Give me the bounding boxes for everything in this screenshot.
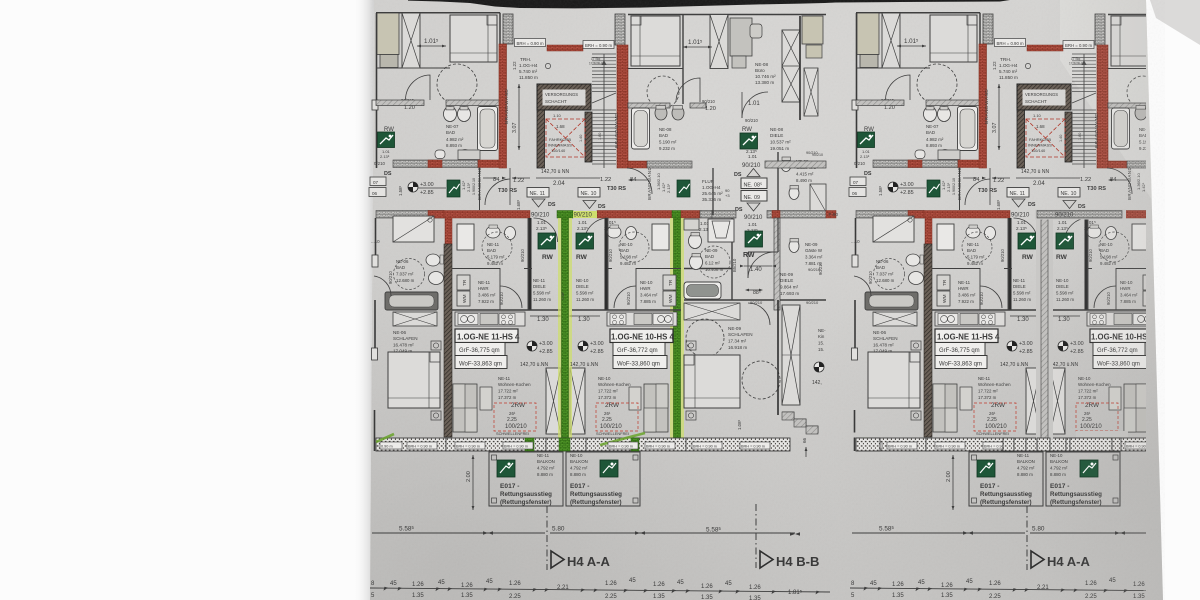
svg-text:26¹: 26¹ [509,411,516,416]
svg-text:1.01: 1.01 [748,101,760,107]
svg-text:90/210: 90/210 [818,262,823,275]
svg-text:SCHLAFEN: SCHLAFEN [393,336,418,341]
svg-text:142,70 ü.NN: 142,70 ü.NN [520,362,548,368]
svg-text:11.260 m: 11.260 m [533,297,551,302]
svg-text:90/210: 90/210 [744,215,763,221]
svg-text:+3.00: +3.00 [420,182,434,188]
svg-text:2.25: 2.25 [602,417,612,423]
svg-text:17.372 m: 17.372 m [498,395,517,400]
svg-text:1.80: 1.80 [598,133,602,140]
svg-text:45: 45 [438,580,445,586]
svg-text:1.OG-NE 11-HS 4: 1.OG-NE 11-HS 4 [457,333,520,342]
svg-text:1.OG-H4: 1.OG-H4 [702,185,721,190]
svg-text:90/210: 90/210 [520,249,525,262]
svg-text:1.OG-H4: 1.OG-H4 [519,63,538,68]
svg-text:1.900/2.10: 1.900/2.10 [472,178,476,195]
svg-text:100/210: 100/210 [505,424,527,430]
svg-text:11.260 m: 11.260 m [576,297,594,302]
svg-text:RW: RW [742,127,752,133]
svg-text:DIELE: DIELE [533,284,546,289]
svg-text:(Rettungsfenster): (Rettungsfenster) [570,499,622,506]
svg-text:DS: DS [734,172,742,178]
svg-text:BALKON: BALKON [537,459,555,464]
svg-text:1.26: 1.26 [461,583,473,589]
svg-text:NE. 08⁵: NE. 08⁵ [744,183,763,189]
svg-text:35.336 m: 35.336 m [702,197,721,202]
svg-text:Kin: Kin [818,334,825,339]
svg-text:+3: +3 [725,193,730,198]
svg-text:DIELE: DIELE [780,278,793,283]
svg-text:NE-11: NE-11 [537,453,550,458]
svg-text:BALKON: BALKON [570,459,588,464]
svg-text:DIELE: DIELE [576,284,589,289]
svg-text:TR: TR [462,279,468,286]
svg-text:NE-11: NE-11 [533,278,546,283]
svg-text:B5/210: B5/210 [732,258,737,272]
svg-text:17.722 m²: 17.722 m² [598,389,618,394]
svg-text:2.25: 2.25 [605,594,617,600]
svg-text:0/210: 0/210 [374,161,386,166]
svg-text:NE-10: NE-10 [598,376,611,381]
svg-text:NE-09: NE-09 [805,242,818,247]
svg-text:3.464 m²: 3.464 m² [640,293,658,298]
svg-text:NE-09: NE-09 [705,248,718,253]
svg-text:2.04: 2.04 [553,181,565,187]
svg-text:1.68: 1.68 [556,124,565,129]
svg-text:90/210: 90/210 [626,292,631,305]
svg-text:142,: 142, [812,380,822,386]
svg-text:9.232 m: 9.232 m [659,146,675,151]
svg-text:1.08⁵: 1.08⁵ [737,419,742,430]
svg-text:NE-08: NE-08 [770,127,783,132]
svg-text:8.893 m: 8.893 m [446,143,462,148]
svg-text:1.01: 1.01 [578,220,587,225]
svg-text:84: 84 [493,177,500,183]
svg-text:SCHWELLENFREI: SCHWELLENFREI [596,431,629,436]
svg-text:NE-11: NE-11 [498,376,511,381]
svg-text:BRH = 0.90 m: BRH = 0.90 m [693,445,717,449]
svg-text:BAD: BAD [659,133,668,138]
svg-text:BRH = 0.90 m: BRH = 0.90 m [741,445,765,449]
svg-text:F90: F90 [446,393,450,400]
svg-text:NE-09: NE-09 [780,272,793,277]
svg-text:5.179 m²: 5.179 m² [487,255,505,260]
svg-text:1.35: 1.35 [653,594,665,600]
svg-text:9.482 m: 9.482 m [620,261,636,266]
svg-text:3.07: 3.07 [512,123,518,134]
svg-text:2.13⁵: 2.13⁵ [666,183,671,193]
svg-text:1.01: 1.01 [748,222,757,227]
svg-text:Rettungsausstieg: Rettungsausstieg [500,491,552,498]
svg-text:+2.85: +2.85 [590,349,604,355]
svg-text:4.792 m²: 4.792 m² [537,466,555,471]
svg-text:SCHWELLENFREI: SCHWELLENFREI [496,431,529,436]
svg-text:NE-06: NE-06 [396,259,409,264]
svg-text:Wohnen-Kochen: Wohnen-Kochen [598,382,631,387]
svg-text:1.35: 1.35 [461,593,473,599]
svg-text:2.13⁵: 2.13⁵ [380,154,390,159]
svg-text:90/210: 90/210 [608,249,613,262]
svg-text:100/210: 100/210 [600,424,622,430]
svg-text:7.922 m: 7.922 m [478,299,494,304]
svg-text:3.364 m²: 3.364 m² [805,255,823,260]
svg-text:FAHRKORB: FAHRKORB [549,137,571,142]
svg-text:17.049 m: 17.049 m [393,349,412,354]
svg-text:GrF-36,775 qm: GrF-36,775 qm [459,348,500,354]
svg-text:DS: DS [548,202,556,208]
svg-text:90/210: 90/210 [745,118,758,123]
svg-text:DS: DS [598,204,606,210]
svg-text:5.598 m²: 5.598 m² [576,291,594,296]
svg-text:BRANDWAND: BRANDWAND [504,89,509,124]
svg-text:BAD: BAD [446,130,455,135]
svg-text:5.598 m²: 5.598 m² [533,291,551,296]
svg-text:NE-09: NE-09 [728,326,741,331]
svg-text:90/210: 90/210 [531,213,550,219]
svg-text:16.478 m²: 16.478 m² [393,343,414,348]
svg-text:BRH = 0.90 m: BRH = 0.90 m [456,445,480,449]
svg-text:10.746 m²: 10.746 m² [755,74,776,79]
svg-text:1.58⁵: 1.58⁵ [398,185,403,196]
svg-text:90/210: 90/210 [574,213,593,219]
svg-text:VERSORGUNGS: VERSORGUNGS [545,92,578,97]
svg-text:07: 07 [373,180,379,185]
svg-text:17.722 m²: 17.722 m² [498,389,518,394]
svg-text:7.037 m²: 7.037 m² [396,272,414,277]
svg-text:5.80: 5.80 [552,526,565,533]
svg-text:H4 B-B: H4 B-B [776,554,819,569]
svg-text:1.30: 1.30 [537,317,549,323]
svg-text:1.35: 1.35 [701,595,713,600]
svg-text:9.482 m: 9.482 m [487,261,503,266]
svg-text:WoF-33,860 qm: WoF-33,860 qm [617,362,660,368]
svg-text:13.380 m: 13.380 m [755,80,774,85]
svg-text:84: 84 [630,177,637,183]
svg-text:1.30: 1.30 [578,317,590,323]
svg-text:2.13⁵: 2.13⁵ [466,182,471,192]
svg-text:WoF-33,863 qm: WoF-33,863 qm [459,362,502,368]
svg-text:9.864 m²: 9.864 m² [780,285,799,290]
svg-text:NE-08: NE-08 [659,127,672,132]
svg-text:2.25: 2.25 [507,417,517,423]
svg-text:4.792 m²: 4.792 m² [570,466,588,471]
svg-text:26¹: 26¹ [604,411,611,416]
svg-text:Wohnen-Kochen: Wohnen-Kochen [498,382,531,387]
svg-text:1.40: 1.40 [579,135,583,142]
svg-text:...10: ...10 [371,239,380,244]
svg-text:66: 66 [802,437,807,443]
svg-text:BRANDWAND: BRANDWAND [647,167,652,200]
svg-text:1.26: 1.26 [653,582,665,588]
svg-text:2.13⁵: 2.13⁵ [746,149,757,154]
svg-text:NE-: NE- [818,328,826,333]
svg-text:8.880 m: 8.880 m [537,472,553,477]
svg-text:+3.00: +3.00 [539,341,553,347]
svg-text:SCHACHT: SCHACHT [545,99,567,104]
svg-text:BRANDWAND: BRANDWAND [477,167,482,200]
svg-text:10.537 m²: 10.537 m² [770,140,791,145]
svg-text:1.36⁵: 1.36⁵ [561,291,565,300]
svg-text:2.13⁵: 2.13⁵ [577,226,588,231]
svg-text:90/210: 90/210 [812,153,823,157]
svg-text:90/210: 90/210 [806,300,819,305]
svg-text:T30 RS: T30 RS [498,188,517,194]
svg-text:110/140: 110/140 [551,148,566,153]
svg-text:DIELE: DIELE [770,133,783,138]
svg-text:45: 45 [390,581,397,587]
svg-text:1.20: 1.20 [705,106,716,112]
svg-text:RW: RW [576,254,588,261]
svg-text:+2.85: +2.85 [420,190,434,196]
svg-text:8.490 m: 8.490 m [796,178,812,183]
svg-text:+2.85: +2.85 [539,349,553,355]
svg-text:HWR: HWR [640,286,651,291]
svg-text:1.26: 1.26 [701,584,713,590]
svg-text:12.680 m: 12.680 m [396,278,415,283]
svg-text:90/210: 90/210 [742,163,761,169]
svg-text:5.740 m²: 5.740 m² [519,69,538,74]
svg-text:T30 RS: T30 RS [607,186,626,192]
svg-text:45: 45 [677,580,684,586]
svg-text:1.35: 1.35 [412,593,424,599]
svg-text:NE-07: NE-07 [446,124,459,129]
svg-text:8.880 m: 8.880 m [570,472,586,477]
svg-text:0.90 m: 0.90 m [381,445,393,449]
svg-text:BRH = 0.90 m: BRH = 0.90 m [408,445,432,449]
svg-text:Gäste W: Gäste W [805,248,823,253]
svg-text:5.190 m²: 5.190 m² [659,140,677,145]
svg-text:NE-11: NE-11 [478,280,491,285]
svg-text:H4 A-A: H4 A-A [567,554,610,569]
svg-text:1.22: 1.22 [513,178,524,184]
svg-text:WM: WM [668,294,674,303]
svg-text:INNENMASS: INNENMASS [548,143,572,148]
svg-text:BRH = 0.90 m: BRH = 0.90 m [609,445,633,449]
svg-text:06: 06 [372,191,378,196]
svg-text:15.: 15. [818,347,824,352]
svg-text:TR: TR [668,279,674,286]
svg-text:90/210: 90/210 [499,292,504,305]
svg-text:142,70 ü NN: 142,70 ü NN [541,169,569,175]
svg-text:3.486 m²: 3.486 m² [478,293,496,298]
svg-text:BAD: BAD [396,265,405,270]
svg-text:NE. 09: NE. 09 [744,195,760,201]
svg-text:1.22: 1.22 [600,177,611,183]
svg-text:NE-10: NE-10 [640,280,653,285]
svg-text:7.885 m: 7.885 m [640,299,656,304]
svg-text:Büro: Büro [755,68,765,73]
svg-text:4.982 m²: 4.982 m² [446,137,464,142]
svg-text:19.051 m: 19.051 m [770,146,789,151]
svg-text:1.26: 1.26 [509,581,521,587]
svg-text:2.21: 2.21 [557,585,569,591]
svg-text:88⁵: 88⁵ [753,290,761,296]
svg-text:NE-10: NE-10 [570,453,583,458]
svg-text:1.10: 1.10 [553,113,562,118]
svg-text:1.68⁵: 1.68⁵ [516,199,521,210]
svg-text:E017 -: E017 - [570,483,589,490]
svg-text:1.22: 1.22 [512,61,517,70]
svg-text:1.35: 1.35 [749,596,761,600]
svg-text:RW: RW [542,254,554,261]
svg-text:BRH = 0.90 m: BRH = 0.90 m [646,445,670,449]
svg-text:1.20: 1.20 [404,105,415,111]
svg-text:2.00: 2.00 [466,471,472,482]
svg-text:BAD: BAD [705,254,714,259]
svg-text:BRH = 0.90 m: BRH = 0.90 m [504,445,528,449]
svg-text:5.198 m²: 5.198 m² [620,255,638,260]
svg-text:DS: DS [384,171,392,177]
svg-text:NE. 10: NE. 10 [581,191,597,197]
svg-text:BAD: BAD [487,248,496,253]
svg-text:11.850 m: 11.850 m [519,75,538,80]
svg-text:1.40: 1.40 [750,267,762,273]
svg-text:1.26: 1.26 [412,582,424,588]
svg-text:HWR: HWR [478,286,489,291]
svg-text:BRANDWAND: BRANDWAND [614,113,619,148]
svg-text:1.OG-NE 10-HS 4: 1.OG-NE 10-HS 4 [611,333,674,342]
svg-text:2.25: 2.25 [509,594,521,600]
svg-text:NE-08: NE-08 [755,62,768,67]
svg-text:10.408 m: 10.408 m [705,267,724,272]
svg-text:NE-11: NE-11 [487,242,500,247]
svg-text:RW: RW [743,252,755,259]
svg-text:6.12 m²: 6.12 m² [705,261,720,266]
svg-text:2.13⁵: 2.13⁵ [536,226,547,231]
svg-text:+3.00: +3.00 [590,341,604,347]
svg-text:17.34 m²: 17.34 m² [728,339,747,344]
svg-text:GrF-36,772 qm: GrF-36,772 qm [617,348,658,354]
svg-text:45: 45 [486,579,493,585]
svg-text:1.26: 1.26 [749,585,761,591]
svg-text:WM: WM [462,294,468,303]
svg-text:45: 45 [725,581,732,587]
svg-text:F-90: F-90 [829,212,839,217]
svg-text:BAD: BAD [620,248,629,253]
svg-text:(Rettungsfenster): (Rettungsfenster) [500,499,552,506]
svg-text:4.415 m²: 4.415 m² [796,172,814,177]
svg-text:2RW: 2RW [511,402,526,409]
svg-text:45: 45 [629,578,636,584]
svg-text:17.693 m: 17.693 m [780,291,799,296]
svg-text:BRH = 0.90 m: BRH = 0.90 m [517,41,545,46]
svg-text:Rettungsausstieg: Rettungsausstieg [570,491,622,498]
svg-text:NE-10: NE-10 [620,242,633,247]
svg-text:17.372 m: 17.372 m [598,395,617,400]
svg-text:15.: 15. [818,341,824,346]
svg-text:NE. 11: NE. 11 [530,191,546,197]
svg-text:16.918 m: 16.918 m [728,345,747,350]
svg-text:NE-10: NE-10 [576,278,589,283]
svg-text:NE-06: NE-06 [393,330,406,335]
svg-text:1.01: 1.01 [748,154,757,159]
svg-text:142,70 ü.NN: 142,70 ü.NN [570,362,598,368]
svg-text:1.26: 1.26 [605,581,617,587]
svg-text:E017 -: E017 - [500,483,519,490]
svg-text:BRH = 0.90 m: BRH = 0.90 m [585,43,613,48]
svg-text:SCHLAFEN: SCHLAFEN [728,332,753,337]
svg-text:90/210: 90/210 [388,271,393,284]
